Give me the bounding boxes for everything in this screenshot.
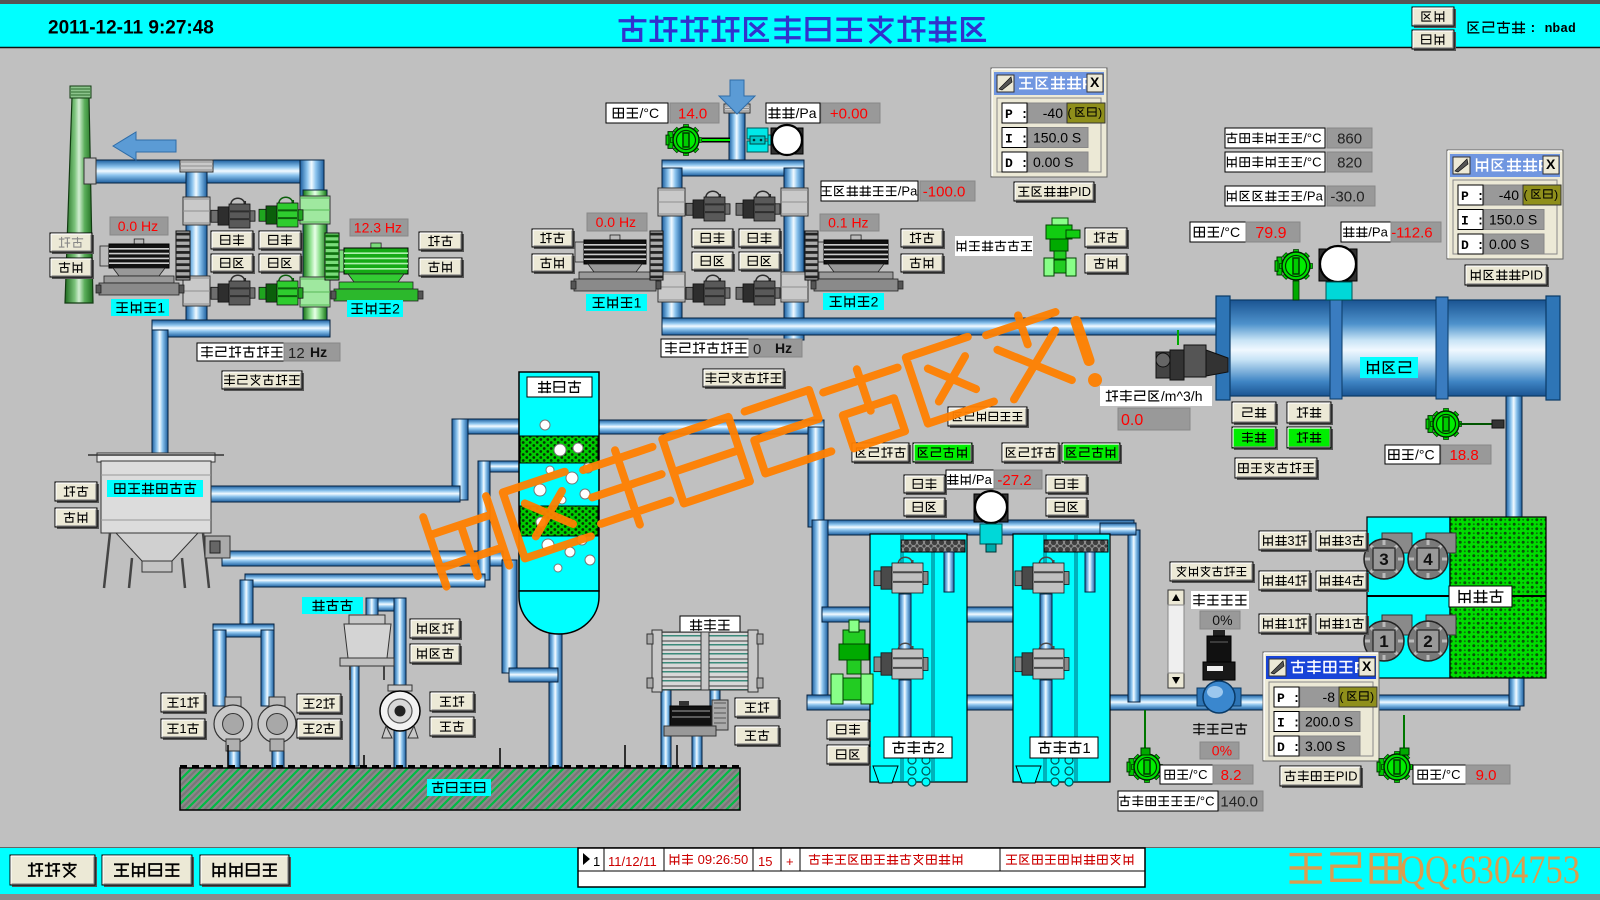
svg-text:820: 820 bbox=[1337, 154, 1362, 171]
svg-text:/°C: /°C bbox=[1415, 447, 1435, 463]
svg-text:D :: D : bbox=[1277, 740, 1300, 755]
svg-text:2: 2 bbox=[871, 294, 879, 310]
svg-text:2011-12-11 9:27:48: 2011-12-11 9:27:48 bbox=[48, 18, 214, 39]
svg-text:3: 3 bbox=[1344, 533, 1351, 548]
svg-text:2: 2 bbox=[392, 301, 400, 317]
svg-text:Hz: Hz bbox=[310, 344, 327, 360]
svg-text:I :: I : bbox=[1461, 214, 1484, 229]
svg-text:0.00 S: 0.00 S bbox=[1489, 236, 1529, 252]
svg-text:150.0 S: 150.0 S bbox=[1489, 212, 1537, 228]
svg-text:P :: P : bbox=[1005, 107, 1028, 122]
svg-text:1: 1 bbox=[634, 295, 642, 311]
svg-text:0.0: 0.0 bbox=[1121, 412, 1143, 429]
svg-text:/Pa: /Pa bbox=[898, 184, 918, 199]
svg-text:-27.2: -27.2 bbox=[997, 472, 1031, 489]
svg-text:X: X bbox=[1362, 658, 1372, 674]
svg-text:15: 15 bbox=[758, 854, 772, 869]
svg-text:/Pa: /Pa bbox=[972, 472, 992, 487]
svg-text:860: 860 bbox=[1337, 130, 1362, 147]
svg-text:8.2: 8.2 bbox=[1221, 767, 1242, 784]
svg-text:/°C: /°C bbox=[1221, 224, 1241, 240]
svg-text:09:26:50: 09:26:50 bbox=[694, 852, 748, 867]
svg-text:/Pa: /Pa bbox=[1303, 189, 1323, 204]
svg-text:1: 1 bbox=[1082, 740, 1090, 757]
svg-text:0.0 Hz: 0.0 Hz bbox=[118, 218, 158, 234]
svg-text:-40: -40 bbox=[1499, 187, 1519, 203]
svg-text:(: ( bbox=[1524, 187, 1528, 201]
svg-text:4: 4 bbox=[1344, 573, 1351, 588]
svg-text:140.0: 140.0 bbox=[1220, 793, 1258, 810]
svg-text:D :: D : bbox=[1461, 238, 1484, 253]
svg-text:PID: PID bbox=[1069, 184, 1091, 199]
svg-text:12.3 Hz: 12.3 Hz bbox=[354, 220, 402, 236]
svg-text:/°C: /°C bbox=[640, 105, 660, 121]
svg-text:P :: P : bbox=[1461, 189, 1484, 204]
svg-text:1: 1 bbox=[179, 721, 186, 736]
svg-text:/Pa: /Pa bbox=[1368, 225, 1388, 240]
svg-text:1: 1 bbox=[1344, 616, 1351, 631]
svg-text:9.0: 9.0 bbox=[1476, 767, 1497, 784]
svg-text:3.00 S: 3.00 S bbox=[1305, 738, 1345, 754]
svg-text:0.00 S: 0.00 S bbox=[1033, 154, 1073, 170]
svg-text:3: 3 bbox=[1379, 550, 1388, 569]
svg-text:PID: PID bbox=[1336, 769, 1358, 784]
svg-text:QQ:6304753: QQ:6304753 bbox=[1400, 847, 1580, 892]
svg-text:-100.0: -100.0 bbox=[923, 183, 966, 200]
svg-text:-40: -40 bbox=[1043, 105, 1063, 121]
svg-text:X: X bbox=[1090, 74, 1100, 90]
svg-text:P :: P : bbox=[1277, 691, 1300, 706]
svg-text:200.0 S: 200.0 S bbox=[1305, 714, 1353, 730]
svg-text:/m^3/h: /m^3/h bbox=[1161, 388, 1203, 404]
svg-text:Hz: Hz bbox=[775, 340, 792, 356]
svg-text:): ) bbox=[1554, 187, 1558, 201]
svg-text:): ) bbox=[1370, 689, 1374, 703]
svg-text:-30.0: -30.0 bbox=[1330, 188, 1364, 205]
svg-text:2: 2 bbox=[315, 721, 322, 736]
svg-text:I :: I : bbox=[1005, 132, 1028, 147]
svg-text:(: ( bbox=[1068, 105, 1072, 119]
svg-text:4: 4 bbox=[1287, 573, 1294, 588]
svg-text:150.0 S: 150.0 S bbox=[1033, 130, 1081, 146]
svg-text:3: 3 bbox=[1287, 533, 1294, 548]
svg-text:+0.00: +0.00 bbox=[830, 105, 868, 122]
svg-text:/°C: /°C bbox=[1303, 131, 1321, 146]
svg-text:79.9: 79.9 bbox=[1255, 225, 1286, 242]
svg-text:I :: I : bbox=[1277, 716, 1300, 731]
svg-text:2: 2 bbox=[315, 696, 322, 711]
svg-text:11/12/11: 11/12/11 bbox=[608, 854, 657, 869]
svg-text:-112.6: -112.6 bbox=[1391, 224, 1432, 241]
svg-text:): ) bbox=[1098, 105, 1102, 119]
svg-text:0%: 0% bbox=[1212, 612, 1232, 628]
svg-text:12: 12 bbox=[288, 345, 305, 362]
svg-text:1: 1 bbox=[157, 300, 165, 316]
svg-text:0.0 Hz: 0.0 Hz bbox=[596, 214, 636, 230]
svg-text:14.0: 14.0 bbox=[678, 105, 707, 122]
svg-text:0%: 0% bbox=[1212, 743, 1232, 759]
svg-text:/°C: /°C bbox=[1303, 155, 1321, 170]
svg-text:1: 1 bbox=[1287, 616, 1294, 631]
svg-text:1: 1 bbox=[1379, 632, 1388, 651]
svg-text:/°C: /°C bbox=[1189, 767, 1207, 782]
svg-text:1: 1 bbox=[179, 695, 186, 710]
svg-text:2: 2 bbox=[1423, 632, 1432, 651]
svg-text:: nbad: : nbad bbox=[1529, 21, 1576, 36]
svg-text:D :: D : bbox=[1005, 156, 1028, 171]
svg-text:X: X bbox=[1546, 156, 1556, 172]
svg-text:(: ( bbox=[1340, 689, 1344, 703]
svg-text:-8: -8 bbox=[1323, 689, 1336, 705]
svg-text:4: 4 bbox=[1423, 550, 1433, 569]
svg-text:/°C: /°C bbox=[1196, 794, 1214, 809]
svg-text:1: 1 bbox=[593, 854, 600, 869]
svg-text:2: 2 bbox=[936, 740, 944, 757]
svg-text:/°C: /°C bbox=[1442, 767, 1460, 782]
svg-text:0: 0 bbox=[753, 341, 761, 358]
svg-text:0.1 Hz: 0.1 Hz bbox=[828, 215, 868, 231]
svg-text:+: + bbox=[786, 854, 794, 869]
svg-text:PID: PID bbox=[1521, 268, 1543, 283]
svg-text:/Pa: /Pa bbox=[796, 105, 817, 121]
svg-text:18.8: 18.8 bbox=[1450, 447, 1479, 464]
